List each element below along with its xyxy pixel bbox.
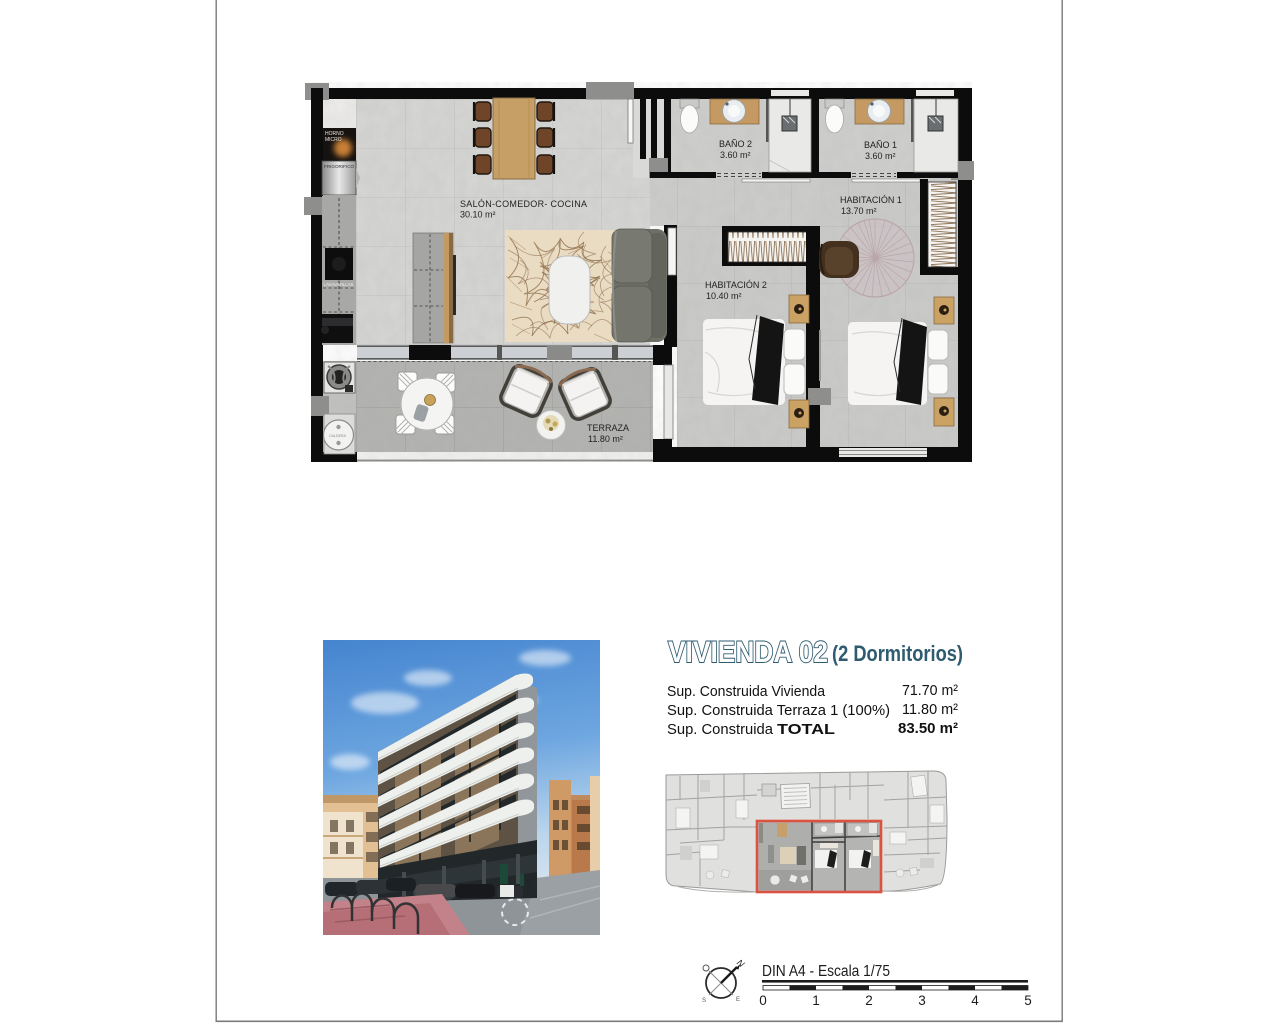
- svg-text:HABITACIÓN 2: HABITACIÓN 2: [705, 280, 767, 290]
- svg-text:5: 5: [1024, 993, 1032, 1008]
- svg-text:3.60 m²: 3.60 m²: [720, 150, 751, 160]
- svg-text:3: 3: [918, 993, 926, 1008]
- svg-text:MICRO: MICRO: [325, 137, 342, 143]
- svg-text:BAÑO 2: BAÑO 2: [719, 139, 752, 149]
- svg-text:TOTAL: TOTAL: [777, 721, 835, 738]
- svg-text:71.70 m²: 71.70 m²: [902, 682, 958, 699]
- svg-text:(2 Dormitorios): (2 Dormitorios): [832, 641, 963, 666]
- svg-text:11.80 m²: 11.80 m²: [902, 701, 958, 718]
- svg-text:TERRAZA: TERRAZA: [587, 423, 629, 433]
- svg-text:FRIGORIFICO: FRIGORIFICO: [324, 164, 355, 169]
- svg-text:13.70 m²: 13.70 m²: [841, 206, 877, 216]
- svg-text:3.60 m²: 3.60 m²: [865, 151, 896, 161]
- svg-text:0: 0: [759, 993, 767, 1008]
- svg-text:LAVAVAJILLAS: LAVAVAJILLAS: [324, 282, 354, 287]
- svg-text:11.80 m²: 11.80 m²: [588, 434, 623, 444]
- svg-text:1: 1: [812, 993, 820, 1008]
- svg-text:10.40 m²: 10.40 m²: [706, 291, 742, 301]
- svg-text:4: 4: [971, 993, 979, 1008]
- svg-text:83.50 m²: 83.50 m²: [898, 720, 958, 737]
- svg-text:HABITACIÓN 1: HABITACIÓN 1: [840, 195, 902, 205]
- svg-text:2: 2: [865, 993, 873, 1008]
- svg-text:Sup. Construida: Sup. Construida: [667, 721, 774, 738]
- svg-text:30.10 m²: 30.10 m²: [460, 210, 496, 220]
- svg-text:SALÓN-COMEDOR- COCINA: SALÓN-COMEDOR- COCINA: [460, 199, 587, 209]
- svg-text:Sup. Construida Terraza 1 (100: Sup. Construida Terraza 1 (100%): [667, 702, 890, 719]
- svg-text:VIVIENDA 02: VIVIENDA 02: [668, 636, 828, 669]
- svg-text:E: E: [736, 997, 740, 1003]
- svg-text:Sup. Construida Vivienda: Sup. Construida Vivienda: [667, 683, 826, 700]
- svg-text:CALDERA: CALDERA: [329, 434, 347, 438]
- svg-text:S: S: [702, 998, 706, 1004]
- svg-text:DIN A4 - Escala 1/75: DIN A4 - Escala 1/75: [762, 963, 890, 980]
- svg-text:BAÑO 1: BAÑO 1: [864, 140, 897, 150]
